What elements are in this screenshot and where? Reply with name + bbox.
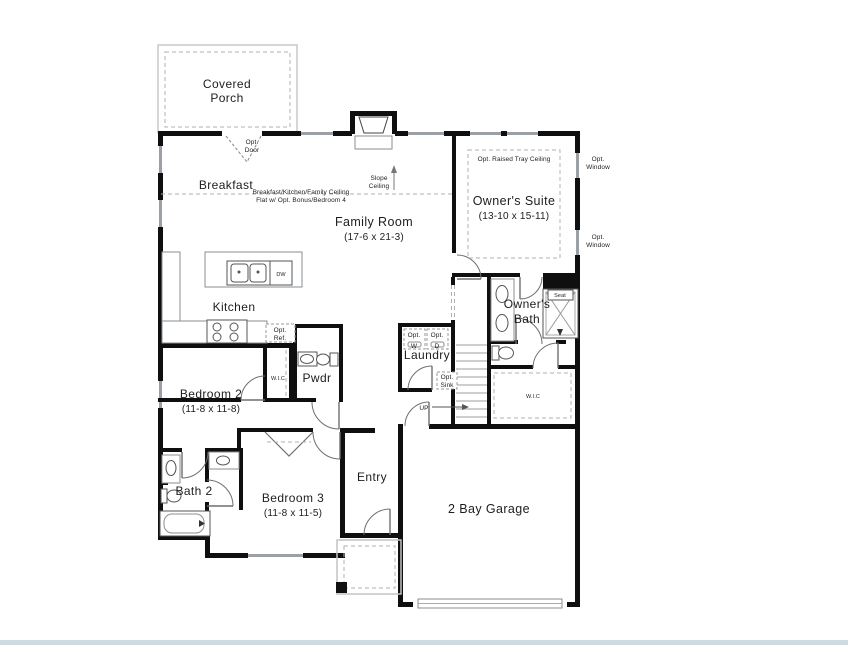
- label-laundry: Laundry: [404, 348, 450, 362]
- front-stoop: [336, 540, 401, 594]
- label-opt-window-2a: Opt.: [592, 234, 605, 241]
- label-opt-ref-1: Opt.: [274, 327, 287, 334]
- label-dishwasher: DW: [276, 272, 286, 278]
- fireplace: [350, 111, 397, 149]
- label-ceiling-note-1: Breakfast/Kitchen/Family Ceiling: [253, 189, 350, 196]
- label-owners-bath-2: Bath: [514, 312, 540, 326]
- stove-icon: [207, 320, 247, 343]
- label-entry: Entry: [357, 470, 387, 484]
- label-opt-window-1a: Opt.: [592, 156, 605, 163]
- kitchen-counter: [162, 252, 180, 323]
- label-owners-suite-dims: (13-10 x 15-11): [479, 211, 550, 222]
- label-bath2: Bath 2: [175, 484, 212, 498]
- label-opt-d-2: D: [435, 343, 440, 350]
- label-opt-ref-2: Ref.: [274, 335, 286, 342]
- label-seat: Seat: [554, 293, 566, 299]
- label-tray-ceiling: Opt. Raised Tray Ceiling: [478, 156, 551, 163]
- label-garage: 2 Bay Garage: [448, 502, 530, 516]
- label-opt-sink-2: Sink: [440, 382, 454, 389]
- label-breakfast: Breakfast: [199, 178, 254, 192]
- closet-double-doors: [265, 432, 313, 456]
- slope-arrow-icon: [391, 165, 397, 173]
- label-opt-sink-1: Opt.: [441, 374, 454, 381]
- label-family-room: Family Room: [335, 215, 413, 229]
- label-opt-window-1b: Window: [586, 164, 610, 171]
- vanity-sink-icon: [496, 315, 508, 332]
- label-opt-window-2b: Window: [586, 242, 610, 249]
- label-opt-door-2: Door: [245, 147, 260, 154]
- label-slope-ceiling-1: Slope: [370, 175, 387, 182]
- pwdr-toilet-icon: [317, 353, 339, 366]
- label-owners-suite: Owner's Suite: [473, 194, 556, 208]
- bath2-sink-icon: [166, 461, 176, 476]
- label-kitchen: Kitchen: [213, 300, 256, 314]
- garage-door: [418, 599, 562, 608]
- page-bottom-strip: [0, 640, 848, 645]
- label-bedroom3: Bedroom 3: [262, 491, 324, 505]
- floor-plan-page: Covered Porch Breakfast Breakfast/Kitche…: [0, 0, 848, 645]
- bath2-sink2-icon: [217, 456, 230, 465]
- label-covered-porch: Covered: [203, 77, 251, 91]
- label-up: UP: [419, 405, 428, 412]
- label-bedroom2: Bedroom 2: [180, 387, 242, 401]
- label-ceiling-note-2: Flat w/ Opt. Bonus/Bedroom 4: [256, 197, 346, 204]
- label-pwdr: Pwdr: [303, 371, 332, 385]
- bathtub-icon: [160, 511, 210, 536]
- label-slope-ceiling-2: Ceiling: [369, 183, 390, 190]
- label-wic-bedroom2: W.I.C: [271, 376, 285, 382]
- label-bedroom2-dims: (11-8 x 11-8): [182, 404, 240, 415]
- floor-plan-drawing: Covered Porch Breakfast Breakfast/Kitche…: [0, 0, 848, 645]
- label-opt-d-1: Opt.: [431, 332, 444, 339]
- label-bedroom3-dims: (11-8 x 11-5): [264, 508, 322, 519]
- label-opt-w-2: W: [411, 343, 418, 350]
- label-wic-owners: W.I.C: [526, 394, 540, 400]
- label-family-room-dims: (17-6 x 21-3): [344, 232, 404, 243]
- label-opt-w-1: Opt.: [408, 332, 421, 339]
- kitchen-sink-icon: [227, 261, 270, 285]
- label-covered-porch-2: Porch: [210, 91, 243, 105]
- label-opt-door-1: Opt.: [246, 139, 259, 146]
- label-owners-bath-1: Owner's: [504, 297, 550, 311]
- owners-toilet-icon: [492, 346, 514, 360]
- pwdr-fixtures: [298, 352, 338, 366]
